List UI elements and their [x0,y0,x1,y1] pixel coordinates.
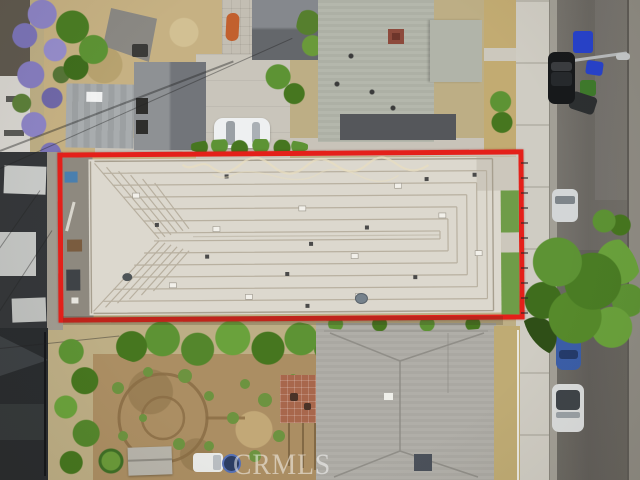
street-tree [522,230,640,358]
black-car [548,52,575,104]
truck-cab [213,455,221,470]
roof-facet [0,404,44,440]
asphalt-patch [595,0,627,200]
shrubs [262,60,308,108]
roof-ridge-lines [316,323,496,480]
garden-shed [128,446,173,476]
roof-debris [330,40,470,120]
car-windshield [551,62,572,71]
front-walkway [484,48,518,61]
dark-apartment-roof [0,152,50,330]
dark-modern-roof [0,328,48,480]
chimney [414,454,432,471]
roof-facet [0,336,48,376]
white-fence [517,330,519,480]
garage-opening [136,120,148,134]
property-outline [57,149,524,322]
bottom-house [316,323,496,480]
chimney-flue [392,33,400,40]
patio-furniture [290,393,298,401]
street-tree-top [588,203,634,243]
aerial-photo: CRMLS [0,0,640,480]
patio-furniture [304,403,311,410]
bbq-grill [132,44,148,57]
porch-roof [340,114,456,140]
blue-trash-bin [585,60,604,76]
blue-trash-bin [573,31,593,53]
roof-terrace-lines [62,154,519,317]
roof-vent [384,393,393,400]
orange-kayak [225,13,239,42]
silver-suv [552,384,584,432]
suv-rear-window [556,412,580,418]
tree-hedge-row [114,318,334,370]
backyard-tree [48,0,118,90]
suv-sunroof [556,390,580,410]
fence-posts [521,162,528,314]
palm-plant [94,444,128,478]
far-gutter [627,0,640,480]
white-truck [193,453,223,472]
car-windshield [555,196,575,204]
car-roof [551,72,572,86]
watermark: CRMLS [233,448,331,480]
shed-skylight [86,92,102,102]
silver-car [552,189,578,222]
streetlight-head [616,53,630,60]
bush [488,86,516,138]
roof-panel [12,297,47,322]
shed-ridge [128,458,172,462]
building-shadow [63,316,503,325]
